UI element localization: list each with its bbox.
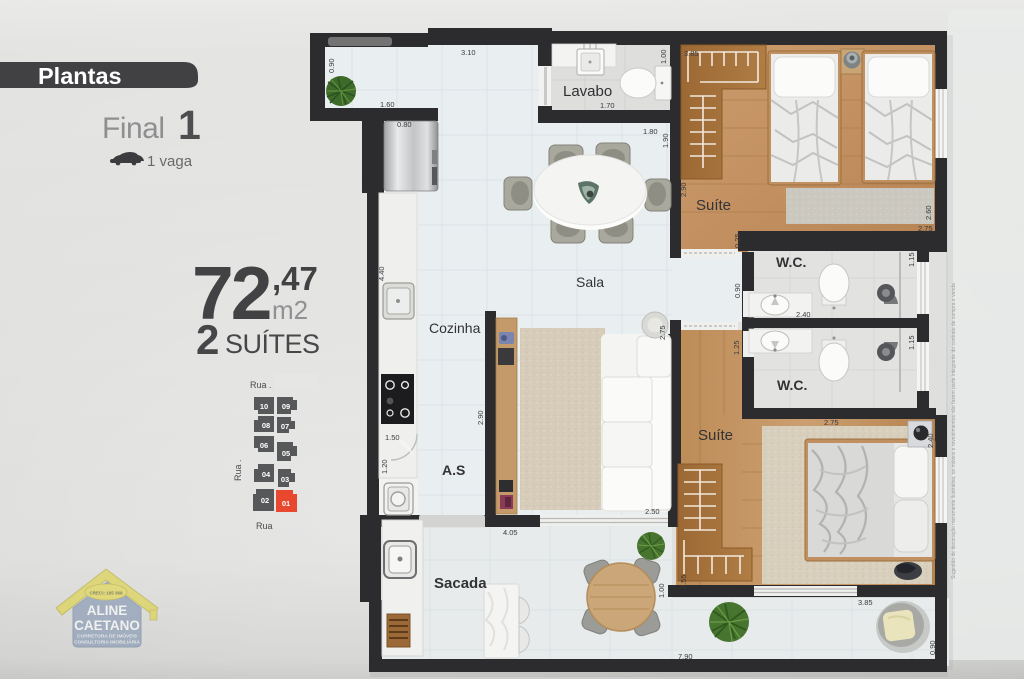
svg-text:2.90: 2.90 bbox=[476, 410, 485, 425]
svg-text:Plantas: Plantas bbox=[38, 63, 122, 89]
svg-text:Rua .: Rua . bbox=[233, 459, 243, 481]
svg-text:0.80: 0.80 bbox=[397, 120, 412, 129]
svg-text:SUÍTES: SUÍTES bbox=[225, 329, 320, 359]
svg-text:04: 04 bbox=[262, 470, 271, 479]
svg-text:05: 05 bbox=[282, 449, 290, 458]
svg-text:Lavabo: Lavabo bbox=[563, 83, 612, 100]
svg-text:1.80: 1.80 bbox=[643, 127, 658, 136]
svg-text:Sala: Sala bbox=[576, 274, 604, 290]
svg-text:Suíte: Suíte bbox=[696, 197, 731, 214]
svg-text:3.85: 3.85 bbox=[858, 598, 873, 607]
svg-text:10: 10 bbox=[260, 402, 268, 411]
svg-text:0.90: 0.90 bbox=[733, 283, 742, 298]
svg-text:2.40: 2.40 bbox=[926, 433, 935, 448]
svg-text:Final: Final bbox=[102, 112, 165, 145]
svg-text:0.90: 0.90 bbox=[928, 640, 937, 655]
svg-text:,47: ,47 bbox=[272, 260, 318, 297]
svg-text:ALINE: ALINE bbox=[87, 603, 128, 618]
svg-text:1.50: 1.50 bbox=[385, 433, 400, 442]
svg-text:1.00: 1.00 bbox=[657, 583, 666, 598]
svg-text:W.C.: W.C. bbox=[777, 377, 807, 393]
svg-text:1.15: 1.15 bbox=[907, 252, 916, 267]
svg-text:1.00: 1.00 bbox=[659, 49, 668, 64]
svg-text:0.25: 0.25 bbox=[733, 233, 742, 248]
svg-text:3.10: 3.10 bbox=[461, 48, 476, 57]
svg-text:1: 1 bbox=[178, 102, 201, 148]
svg-text:3.55: 3.55 bbox=[679, 574, 688, 589]
svg-text:4.05: 4.05 bbox=[503, 528, 518, 537]
svg-text:1 vaga: 1 vaga bbox=[147, 153, 193, 170]
svg-text:7.90: 7.90 bbox=[678, 652, 693, 661]
svg-text:07: 07 bbox=[281, 422, 289, 431]
svg-text:Rua: Rua bbox=[256, 521, 273, 531]
svg-text:06: 06 bbox=[260, 441, 268, 450]
svg-text:1.25: 1.25 bbox=[732, 340, 741, 355]
svg-text:1.90: 1.90 bbox=[661, 133, 670, 148]
svg-text:4.40: 4.40 bbox=[377, 266, 386, 281]
svg-text:1.15: 1.15 bbox=[907, 335, 916, 350]
svg-text:2.60: 2.60 bbox=[924, 205, 933, 220]
svg-text:03: 03 bbox=[281, 475, 289, 484]
svg-text:02: 02 bbox=[261, 496, 269, 505]
svg-text:2.75: 2.75 bbox=[918, 224, 933, 233]
svg-text:09: 09 bbox=[282, 402, 290, 411]
svg-text:m2: m2 bbox=[272, 295, 308, 325]
svg-text:Suíte: Suíte bbox=[698, 427, 733, 444]
svg-text:3.85: 3.85 bbox=[684, 49, 699, 58]
svg-text:A.S: A.S bbox=[442, 462, 465, 478]
svg-text:CRECI: 165 369: CRECI: 165 369 bbox=[89, 591, 123, 596]
svg-text:W.C.: W.C. bbox=[776, 254, 806, 270]
svg-text:1.60: 1.60 bbox=[380, 100, 395, 109]
svg-text:2.75: 2.75 bbox=[824, 418, 839, 427]
svg-text:CAETANO: CAETANO bbox=[74, 618, 140, 633]
svg-text:Sugestão de decoração merament: Sugestão de decoração meramente ilustrat… bbox=[951, 283, 957, 579]
svg-text:Rua .: Rua . bbox=[250, 380, 272, 390]
svg-text:CONSULTORIA IMOBILIÁRIA: CONSULTORIA IMOBILIÁRIA bbox=[74, 639, 140, 646]
svg-text:01: 01 bbox=[282, 499, 290, 508]
svg-text:Cozinha: Cozinha bbox=[429, 320, 481, 336]
svg-text:08: 08 bbox=[262, 421, 270, 430]
svg-text:2: 2 bbox=[196, 316, 219, 363]
svg-text:Sacada: Sacada bbox=[434, 575, 487, 592]
svg-text:2.75: 2.75 bbox=[658, 325, 667, 340]
svg-text:1.70: 1.70 bbox=[600, 101, 615, 110]
svg-text:2.40: 2.40 bbox=[796, 310, 811, 319]
svg-text:1.20: 1.20 bbox=[380, 459, 389, 474]
svg-text:2.90: 2.90 bbox=[679, 182, 688, 197]
svg-text:0.90: 0.90 bbox=[327, 58, 336, 73]
svg-text:2.50: 2.50 bbox=[645, 507, 660, 516]
